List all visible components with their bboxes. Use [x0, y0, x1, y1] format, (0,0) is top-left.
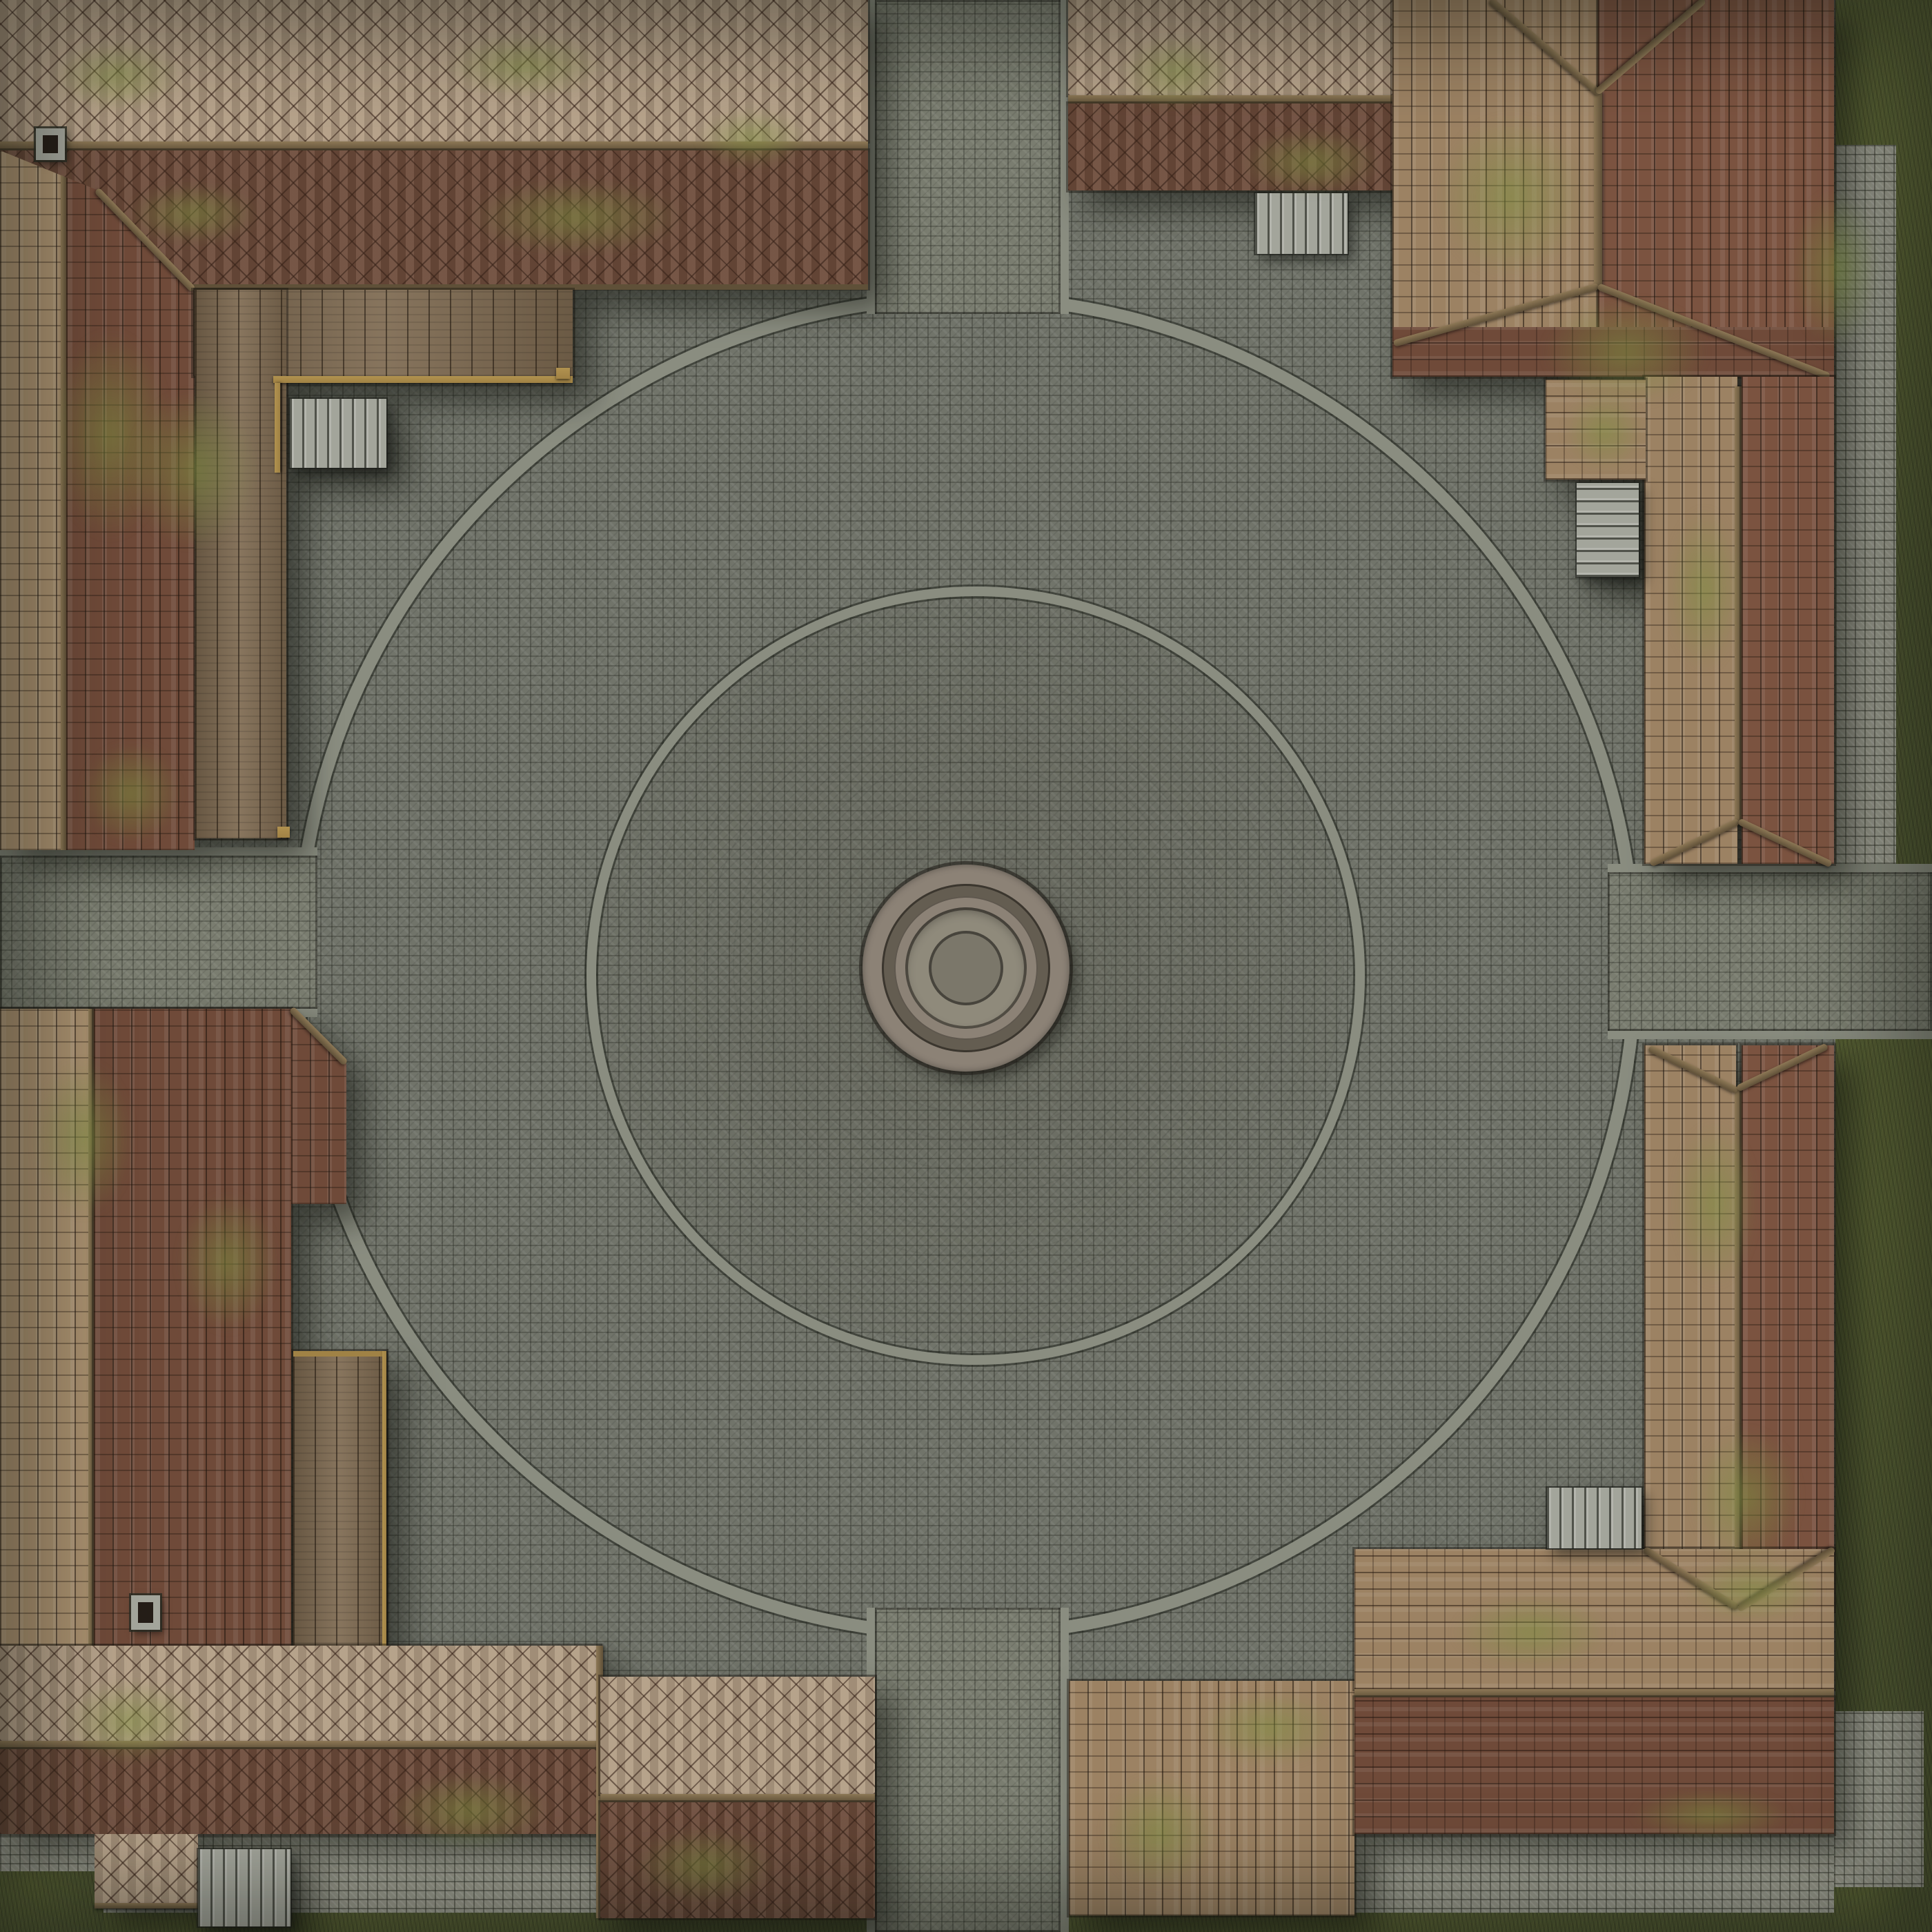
- moss-patch: [1214, 117, 1408, 207]
- moss-patch: [359, 1759, 580, 1863]
- sw-walkway-right-trim: [382, 1351, 386, 1646]
- moss-patch: [14, 1028, 152, 1249]
- sw-chimney: [131, 1595, 160, 1630]
- nw-deck-railing: [273, 376, 573, 383]
- sw-wooden-walkway: [293, 1351, 386, 1651]
- moss-patch: [159, 1166, 297, 1359]
- moss-patch: [1653, 476, 1756, 704]
- moss-patch: [414, 21, 635, 110]
- ne-lower-staircase: [1577, 483, 1639, 577]
- east-road: [1608, 864, 1932, 1039]
- west-road: [0, 847, 317, 1017]
- se-hall-ridge-beam: [1354, 1689, 1834, 1697]
- moss-patch: [1408, 83, 1615, 310]
- sw-hall-b-upper-plane: [600, 1677, 875, 1794]
- north-road: [867, 0, 1069, 314]
- south-road: [867, 1608, 1069, 1932]
- moss-patch: [1656, 1546, 1849, 1635]
- moss-patch: [1601, 1780, 1822, 1849]
- moss-patch: [62, 724, 200, 862]
- moss-patch: [607, 1815, 800, 1918]
- moss-patch: [103, 359, 283, 580]
- nw-walkway-end-post: [277, 827, 290, 838]
- battlemap-canvas: [0, 0, 1932, 1932]
- sw-hall-b-ridge-beam: [600, 1794, 875, 1802]
- moss-patch: [428, 166, 724, 269]
- nw-eave-fascia: [192, 284, 868, 290]
- central-fountain: [862, 865, 1069, 1072]
- moss-patch: [28, 28, 207, 124]
- ne-lower-wing-right-plane: [1742, 377, 1834, 864]
- rubble-patch-southeast: [1834, 1711, 1924, 1911]
- moss-patch: [1421, 1580, 1642, 1684]
- sw-leanto-roof: [95, 1834, 198, 1906]
- moss-patch: [676, 97, 828, 179]
- grass-corner-southeast: [1834, 1887, 1932, 1932]
- moss-patch: [1173, 1677, 1366, 1780]
- moss-patch: [1097, 21, 1256, 124]
- sw-staircase: [198, 1849, 290, 1926]
- sw-leanto-beam: [95, 1903, 198, 1909]
- nw-staircase: [290, 399, 386, 468]
- moss-patch: [1549, 376, 1659, 486]
- se-staircase: [1547, 1488, 1642, 1548]
- moss-patch: [1080, 1753, 1239, 1911]
- moss-patch: [103, 172, 283, 255]
- nw-chimney: [36, 128, 65, 160]
- fountain-center-disc: [929, 931, 1003, 1005]
- moss-patch: [1656, 1090, 1773, 1318]
- moss-patch: [34, 1663, 228, 1780]
- nw-deck-corner-post: [556, 368, 570, 379]
- moss-patch: [1773, 159, 1897, 379]
